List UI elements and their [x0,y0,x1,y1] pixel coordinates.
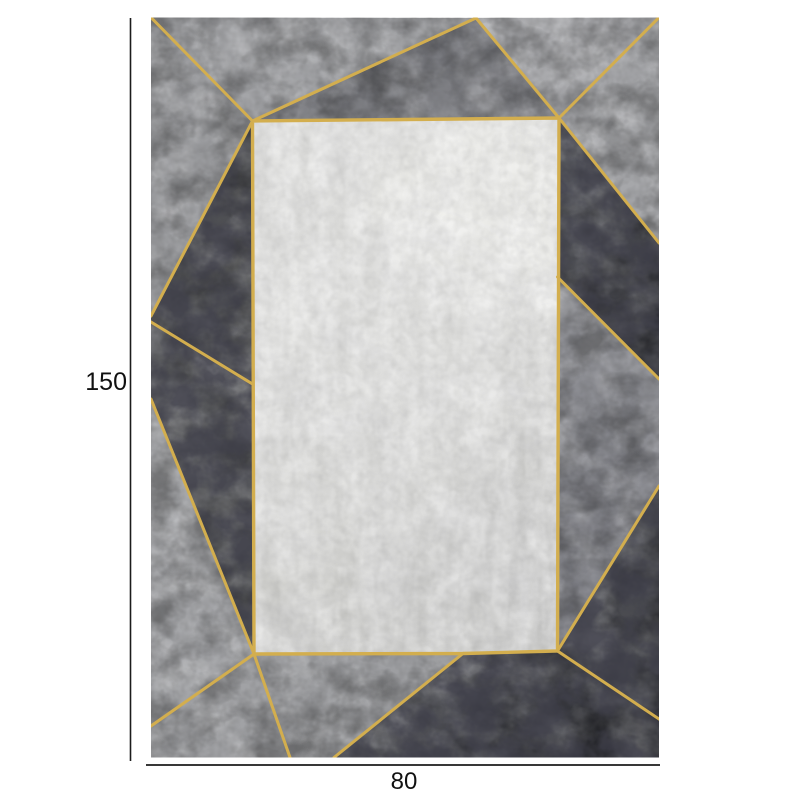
svg-text:150: 150 [85,368,127,396]
svg-text:80: 80 [391,768,418,795]
